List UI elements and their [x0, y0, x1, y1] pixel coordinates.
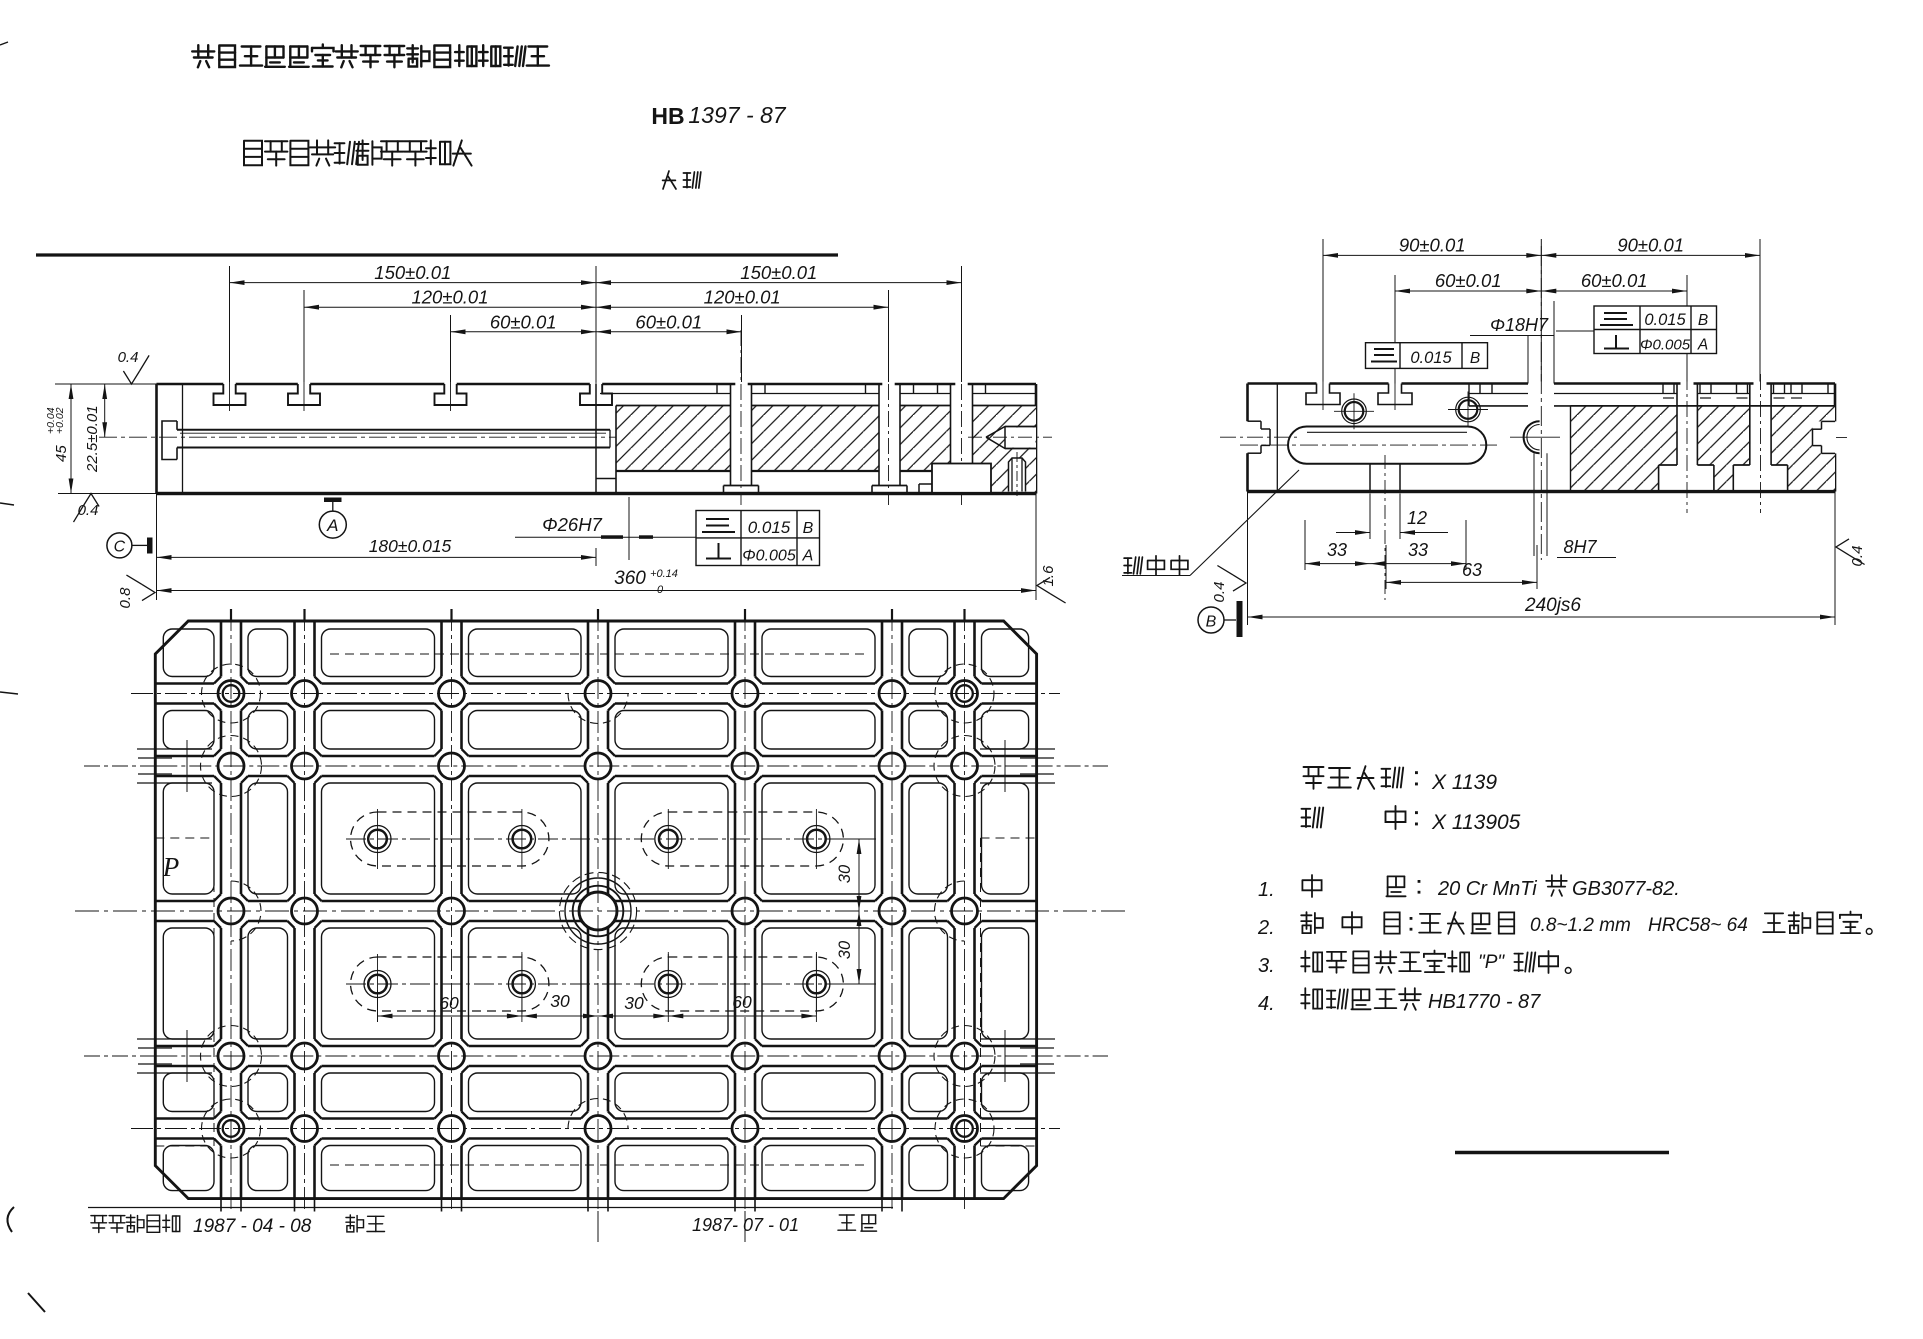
svg-text:Φ0.005: Φ0.005 — [742, 548, 796, 565]
svg-text:30: 30 — [836, 864, 854, 883]
svg-text:20 Cr MnTi: 20 Cr MnTi — [1437, 878, 1537, 900]
svg-text:0.4: 0.4 — [118, 349, 139, 366]
svg-text:60±0.01: 60±0.01 — [1581, 270, 1648, 291]
svg-text:33: 33 — [1408, 540, 1428, 560]
svg-text:1987- 07 - 01: 1987- 07 - 01 — [692, 1215, 799, 1235]
svg-text:B: B — [803, 520, 814, 537]
svg-text:B: B — [1698, 312, 1708, 329]
svg-text:60: 60 — [439, 993, 459, 1013]
svg-text:120±0.01: 120±0.01 — [704, 287, 781, 308]
svg-text:B: B — [1470, 350, 1480, 367]
svg-text:33: 33 — [1327, 540, 1347, 560]
svg-text:A: A — [326, 516, 338, 535]
svg-text:"P": "P" — [1478, 952, 1505, 973]
svg-text:0.015: 0.015 — [748, 518, 791, 537]
svg-text:0.4: 0.4 — [78, 502, 99, 519]
svg-text:60±0.01: 60±0.01 — [1435, 270, 1502, 291]
svg-text:45: 45 — [53, 445, 70, 462]
svg-text:63: 63 — [1462, 560, 1482, 580]
svg-text:X 1139: X 1139 — [1431, 771, 1497, 794]
svg-text:60±0.01: 60±0.01 — [635, 311, 702, 332]
svg-text:120±0.01: 120±0.01 — [411, 287, 488, 308]
svg-text:A: A — [802, 548, 814, 565]
svg-text:60: 60 — [732, 992, 752, 1012]
svg-text:180±0.015: 180±0.015 — [369, 536, 452, 556]
svg-text:150±0.01: 150±0.01 — [374, 262, 451, 283]
svg-text:HB1770 - 87: HB1770 - 87 — [1428, 991, 1541, 1013]
svg-text:0.015: 0.015 — [1644, 311, 1686, 329]
svg-text:0.4: 0.4 — [1849, 546, 1866, 567]
svg-text:X 113905: X 113905 — [1431, 811, 1521, 834]
svg-text:2.: 2. — [1257, 917, 1275, 939]
svg-text:90±0.01: 90±0.01 — [1617, 234, 1684, 255]
svg-text:+0.14: +0.14 — [650, 568, 678, 580]
svg-text:0.8~1.2 mm: 0.8~1.2 mm — [1530, 915, 1631, 936]
svg-text:240js6: 240js6 — [1524, 595, 1581, 616]
svg-text:0.4: 0.4 — [1211, 582, 1228, 603]
svg-text:30: 30 — [550, 991, 570, 1011]
svg-text:22.5±0.01: 22.5±0.01 — [84, 405, 101, 473]
svg-text:+0.02: +0.02 — [54, 407, 66, 434]
svg-text:360: 360 — [614, 568, 646, 589]
svg-text:0.015: 0.015 — [1410, 349, 1452, 367]
svg-text:60±0.01: 60±0.01 — [490, 311, 557, 332]
svg-text:1.6: 1.6 — [1040, 565, 1057, 587]
svg-text:1.: 1. — [1258, 879, 1275, 901]
svg-text:4.: 4. — [1258, 993, 1275, 1015]
svg-text:150±0.01: 150±0.01 — [740, 262, 817, 283]
svg-text:0.8: 0.8 — [117, 587, 134, 609]
svg-text:C: C — [114, 539, 126, 556]
svg-text:1397 - 87: 1397 - 87 — [688, 102, 786, 128]
svg-text:HRC58~ 64: HRC58~ 64 — [1648, 915, 1748, 936]
svg-text:30: 30 — [836, 940, 854, 959]
svg-text:0: 0 — [657, 584, 664, 596]
svg-text:3.: 3. — [1258, 955, 1275, 977]
svg-text:A: A — [1697, 337, 1708, 354]
svg-text:90±0.01: 90±0.01 — [1399, 234, 1466, 255]
svg-text:Φ0.005: Φ0.005 — [1640, 337, 1691, 354]
svg-text:B: B — [1206, 614, 1217, 631]
svg-text:P: P — [162, 852, 180, 882]
svg-text:HB: HB — [651, 103, 684, 129]
svg-text:8H7: 8H7 — [1563, 537, 1597, 557]
svg-text:12: 12 — [1407, 508, 1427, 528]
svg-text:30: 30 — [624, 993, 644, 1013]
svg-text:GB3077-82.: GB3077-82. — [1572, 878, 1680, 900]
svg-text:Φ26H7: Φ26H7 — [542, 514, 602, 535]
svg-text:Φ18H7: Φ18H7 — [1490, 315, 1549, 335]
svg-text:1987 - 04 - 08: 1987 - 04 - 08 — [193, 1216, 312, 1237]
